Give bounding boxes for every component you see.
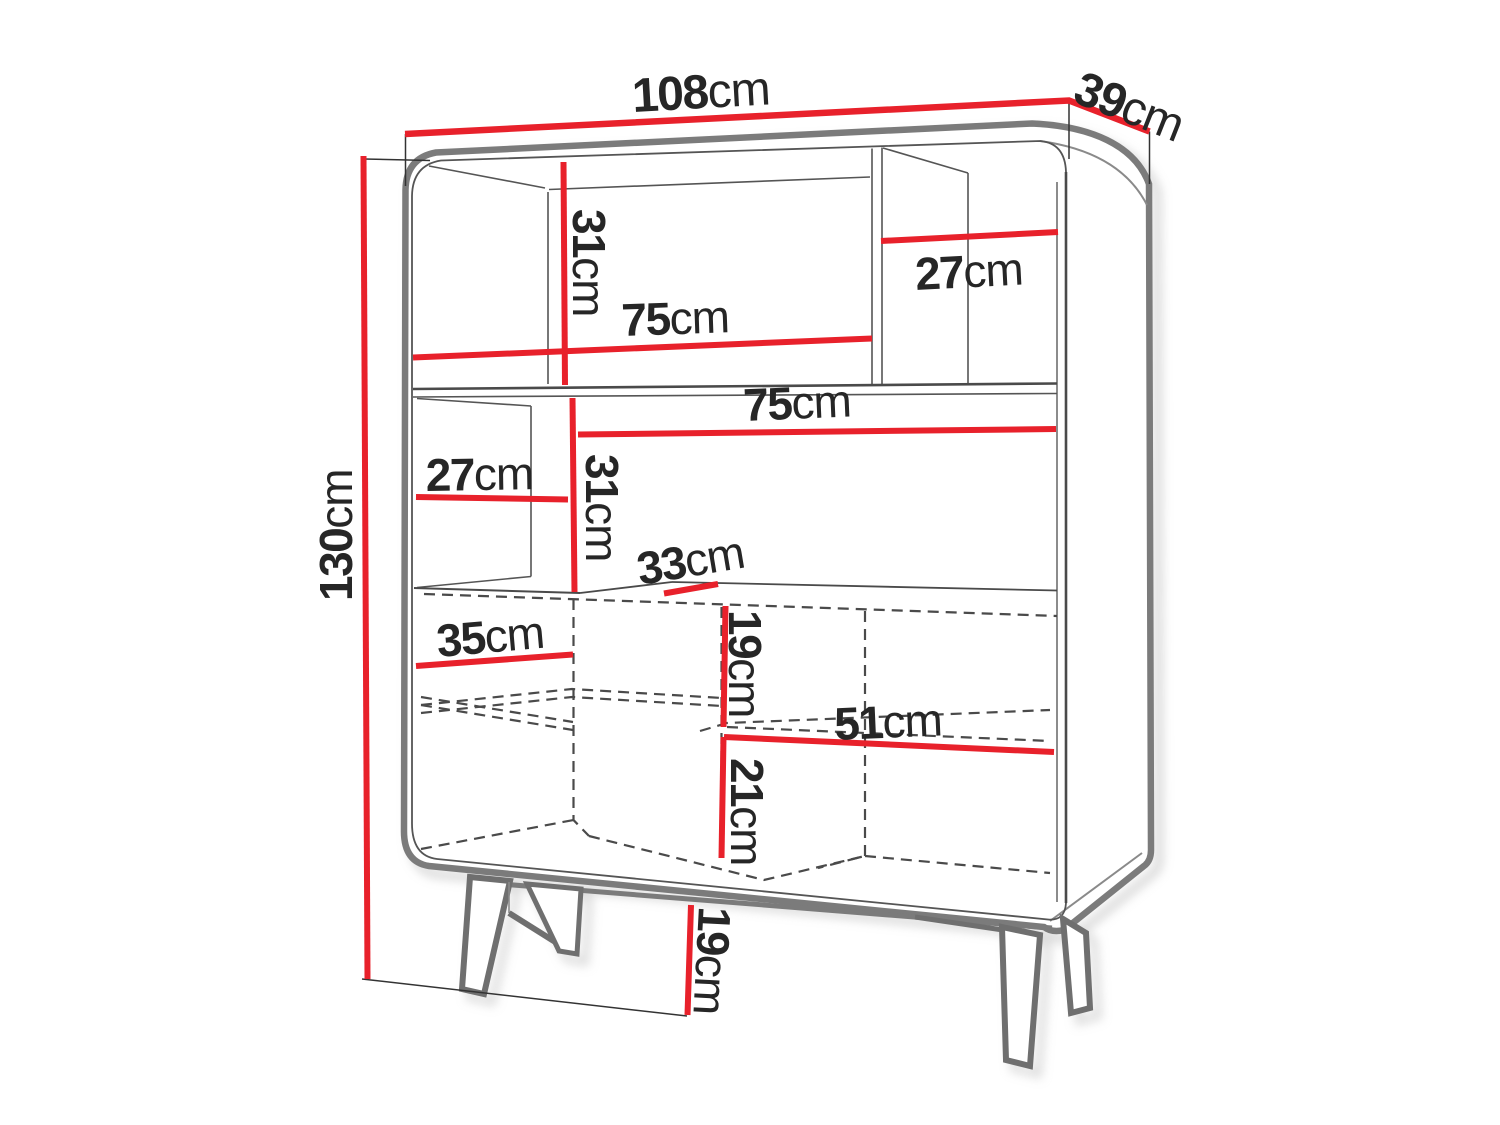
svg-text:27cm: 27cm xyxy=(914,242,1024,300)
svg-text:19cm: 19cm xyxy=(683,905,741,1015)
svg-text:130cm: 130cm xyxy=(310,469,362,601)
svg-text:21cm: 21cm xyxy=(721,758,773,866)
svg-text:31cm: 31cm xyxy=(576,454,628,562)
svg-text:51cm: 51cm xyxy=(833,693,943,750)
svg-text:19cm: 19cm xyxy=(719,610,771,718)
svg-text:75cm: 75cm xyxy=(621,290,730,346)
svg-text:27cm: 27cm xyxy=(425,447,533,501)
svg-text:75cm: 75cm xyxy=(742,374,852,431)
svg-text:108cm: 108cm xyxy=(631,62,771,123)
svg-text:35cm: 35cm xyxy=(434,606,546,667)
svg-text:31cm: 31cm xyxy=(563,209,615,317)
